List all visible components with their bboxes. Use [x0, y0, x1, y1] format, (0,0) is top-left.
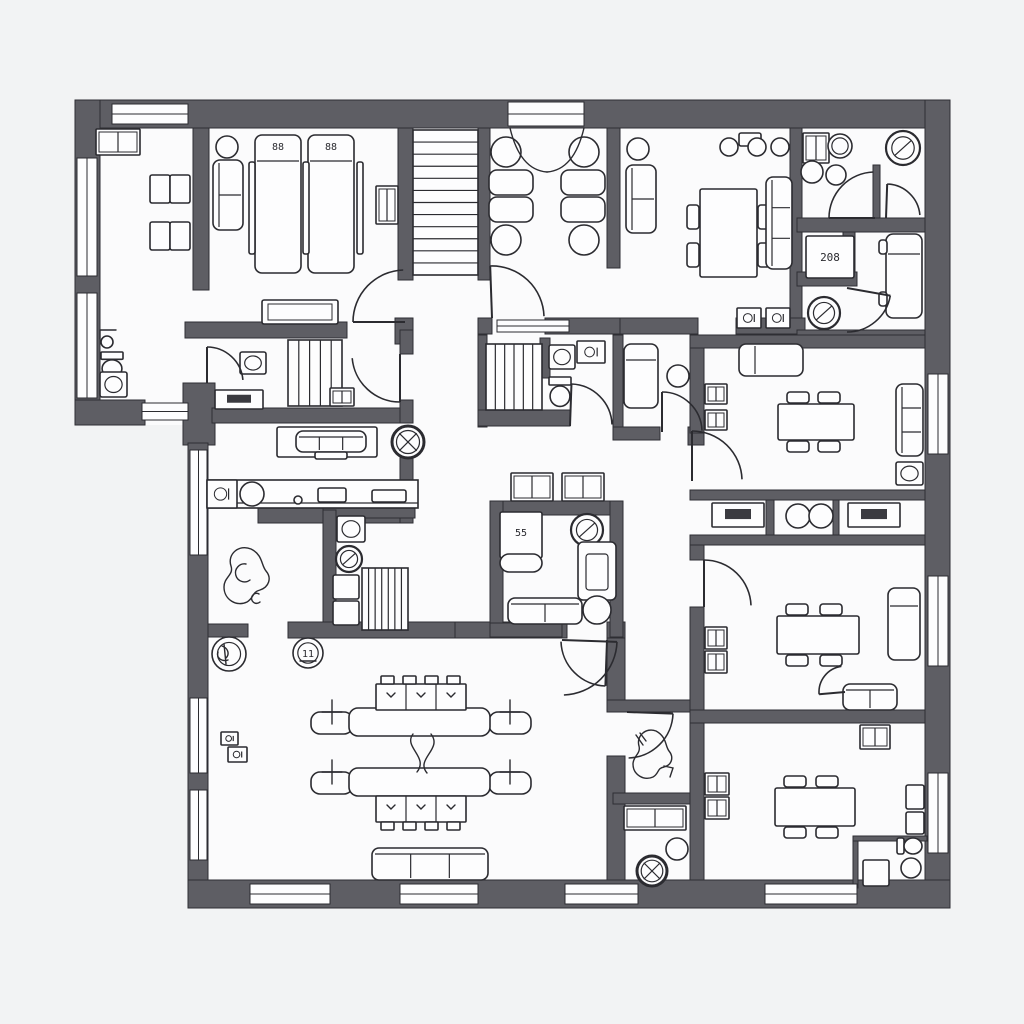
sink: [100, 372, 127, 397]
sofa: [896, 384, 923, 456]
loveseat-cushion: [489, 170, 533, 195]
bed: [886, 234, 922, 318]
chair: [784, 827, 806, 838]
room-label: 88: [272, 142, 284, 153]
round-table: [491, 137, 521, 167]
furniture-rect: [897, 838, 904, 854]
round-table: [583, 596, 611, 624]
round-table: [491, 225, 521, 255]
chair: [687, 205, 699, 229]
round-table: [786, 504, 810, 528]
furniture-rounded: [500, 554, 542, 572]
wall-segment: [75, 400, 145, 425]
appliance: [737, 308, 761, 328]
chair: [787, 392, 809, 403]
wall-segment: [212, 408, 413, 423]
furniture-rect: [318, 488, 346, 502]
furniture-rect: [906, 812, 924, 834]
room-label: 55: [515, 528, 527, 539]
furniture-rect: [700, 189, 757, 277]
bed: [308, 135, 354, 273]
chair: [818, 441, 840, 452]
wall-segment: [690, 490, 925, 500]
appliance: [766, 308, 790, 328]
furniture-rect: [906, 785, 924, 809]
round-table: [627, 138, 649, 160]
wall-segment: [766, 500, 774, 535]
wall-segment: [208, 624, 248, 637]
chair: [816, 827, 838, 838]
furniture-rect: [775, 788, 855, 826]
console-screen: [861, 509, 887, 519]
wall-segment: [607, 756, 625, 880]
round-table: [216, 136, 238, 158]
chair: [816, 776, 838, 787]
furniture-rect: [303, 162, 309, 254]
round-table: [720, 138, 738, 156]
console-screen: [725, 509, 751, 519]
toilet-bowl: [550, 386, 570, 406]
sofa: [372, 848, 488, 880]
seat-tab: [447, 822, 460, 830]
wall-segment: [833, 500, 839, 535]
sink: [240, 352, 266, 374]
furniture-rect: [150, 175, 170, 203]
sink: [549, 345, 575, 369]
furniture-rect: [249, 162, 255, 254]
wall-segment: [193, 128, 209, 290]
furniture-rect: [170, 175, 190, 203]
room-label: 88: [325, 142, 337, 153]
wall-segment: [873, 165, 880, 218]
chair: [786, 604, 808, 615]
armchair: [578, 542, 616, 600]
chair: [820, 655, 842, 666]
door-leaf: [886, 184, 887, 218]
furniture-rect: [357, 162, 363, 254]
wall-segment: [400, 400, 413, 423]
chair: [879, 240, 887, 254]
wall-segment: [853, 836, 858, 888]
seat-tab: [447, 676, 460, 684]
console-screen: [227, 395, 251, 403]
chair: [784, 776, 806, 787]
wall-segment: [690, 335, 704, 433]
round-table: [666, 838, 688, 860]
wall-segment: [620, 318, 698, 334]
appliance: [207, 480, 237, 508]
furniture-rect: [777, 616, 859, 654]
round-table: [667, 365, 689, 387]
wall-segment: [478, 128, 490, 280]
wall-segment: [75, 100, 935, 128]
wall-segment: [613, 427, 660, 440]
sink: [896, 462, 923, 485]
wall-segment: [607, 700, 704, 712]
bed: [624, 344, 658, 408]
toilet-tank: [101, 352, 123, 359]
furniture-rect: [333, 575, 359, 599]
round-table: [294, 496, 302, 504]
furniture-rect: [778, 404, 854, 440]
chair: [820, 604, 842, 615]
wall-segment: [478, 410, 570, 426]
toilet-tank: [549, 377, 571, 385]
wall-segment: [607, 128, 620, 268]
bed: [255, 135, 301, 273]
wall-segment: [690, 607, 704, 710]
furniture-rect: [372, 490, 406, 502]
chair: [787, 441, 809, 452]
seat-tab: [425, 676, 438, 684]
wall-segment: [398, 128, 413, 280]
round-table: [801, 161, 823, 183]
seat-tab: [403, 676, 416, 684]
sink: [337, 516, 365, 542]
furniture-rounded: [349, 708, 490, 736]
wall-segment: [797, 218, 925, 232]
furniture-rounded: [349, 768, 490, 796]
furniture-rect: [863, 860, 889, 886]
round-table: [569, 137, 599, 167]
bed: [888, 588, 920, 660]
round-table: [809, 504, 833, 528]
wall-segment: [690, 545, 704, 560]
sofa: [296, 431, 366, 452]
appliance: [577, 341, 605, 363]
furniture-rect: [333, 601, 359, 625]
round-table: [826, 165, 846, 185]
round-table: [901, 858, 921, 878]
loveseat-cushion: [561, 197, 605, 222]
loveseat-cushion: [489, 197, 533, 222]
wall-segment: [490, 623, 562, 637]
round-table: [569, 225, 599, 255]
wall-segment: [690, 335, 925, 348]
bed: [739, 344, 803, 376]
floorplan-page: 88882085511: [0, 0, 1024, 1024]
chair: [687, 243, 699, 267]
room-label: 208: [820, 251, 840, 264]
loveseat-cushion: [561, 170, 605, 195]
wall-segment: [613, 793, 690, 804]
room-label: 11: [302, 649, 314, 660]
round-table: [748, 138, 766, 156]
furniture-rect: [170, 222, 190, 250]
chair: [786, 655, 808, 666]
appliance: [221, 732, 238, 745]
furniture-rect: [315, 452, 347, 459]
round-table: [240, 482, 264, 506]
sofa: [766, 177, 792, 269]
seat-tab: [425, 822, 438, 830]
wall-segment: [690, 535, 925, 545]
round-table: [771, 138, 789, 156]
furniture-rect: [150, 222, 170, 250]
chair: [818, 392, 840, 403]
wall-segment: [690, 710, 925, 723]
floorplan-svg: 88882085511: [0, 0, 1024, 1024]
seat-tab: [403, 822, 416, 830]
round-table: [101, 336, 113, 348]
wall-segment: [400, 330, 413, 354]
wall-segment: [613, 335, 623, 440]
seat-tab: [381, 676, 394, 684]
appliance: [228, 747, 247, 762]
wall-segment: [478, 318, 492, 334]
toilet-bowl: [904, 838, 922, 854]
seat-tab: [381, 822, 394, 830]
wall-segment: [690, 723, 704, 880]
